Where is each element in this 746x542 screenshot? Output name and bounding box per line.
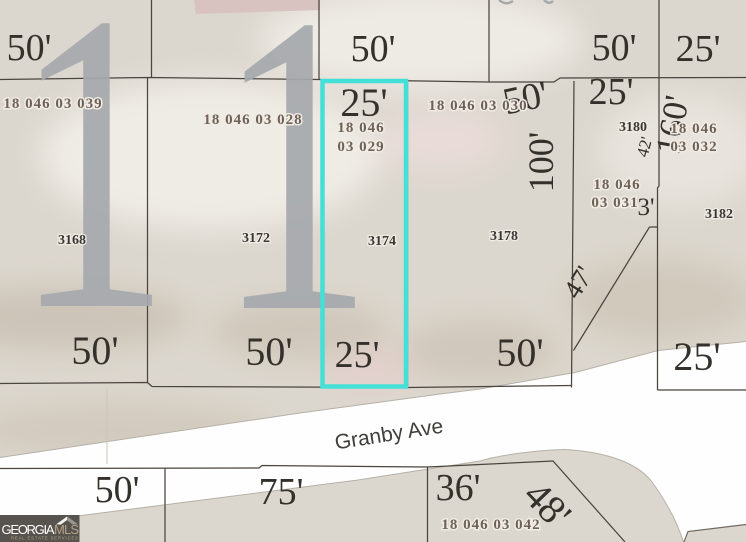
svg-text:18 046 03 039: 18 046 03 039 [3,96,102,112]
svg-text:25': 25' [340,80,387,125]
svg-text:3178: 3178 [490,229,518,244]
svg-text:3168: 3168 [58,233,86,248]
svg-text:18 046 03 028: 18 046 03 028 [203,112,302,128]
svg-text:3172: 3172 [242,231,270,246]
svg-text:18 046 03 042: 18 046 03 042 [441,517,540,533]
svg-text:100': 100' [521,132,561,193]
svg-text:25': 25' [589,71,634,113]
svg-text:25': 25' [335,334,380,376]
svg-text:REAL ESTATE SERVICES: REAL ESTATE SERVICES [11,536,79,541]
svg-text:75': 75' [259,471,304,513]
svg-text:50': 50' [71,328,118,373]
svg-text:3174: 3174 [368,234,396,249]
svg-text:25': 25' [676,28,721,70]
svg-text:50': 50' [7,27,52,69]
svg-text:18 046 03 030: 18 046 03 030 [428,98,527,114]
svg-text:50': 50' [496,330,543,375]
svg-text:25': 25' [673,334,720,379]
svg-text:36': 36' [436,467,481,509]
svg-text:03 029: 03 029 [337,139,384,155]
svg-text:18 046: 18 046 [670,121,717,137]
svg-text:03 032: 03 032 [670,139,717,155]
svg-text:03 031: 03 031 [591,195,638,211]
svg-text:50': 50' [95,469,140,511]
svg-text:50': 50' [245,329,292,374]
svg-text:3182: 3182 [705,207,733,222]
svg-text:3180: 3180 [619,120,647,135]
svg-text:3': 3' [637,194,654,221]
svg-text:18 046: 18 046 [593,177,640,193]
svg-text:50': 50' [592,27,637,69]
svg-text:18 046: 18 046 [337,120,384,136]
svg-text:50': 50' [351,28,396,70]
